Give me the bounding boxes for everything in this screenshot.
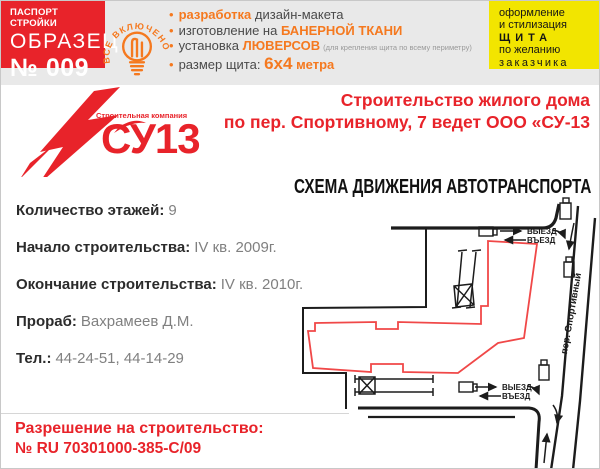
feature-item-design: •разработка дизайн-макета [169, 7, 487, 23]
street-name-label: пер. Спортивный [559, 272, 584, 355]
exit-label-bottom: ВЫЕЗД [502, 383, 532, 392]
truck-icon [560, 198, 571, 219]
enter-label-top: ВЪЕЗД [527, 236, 556, 245]
top-road [391, 204, 559, 228]
bullet-icon: • [169, 23, 174, 38]
bullet-icon: • [169, 38, 174, 53]
info-row-finish: Окончание строительства:IV кв. 2010г. [16, 274, 296, 295]
headline-line2: по пер. Спортивному, 7 ведет ООО «СУ-13 [151, 111, 590, 133]
styling-line: заказчика [499, 57, 600, 69]
exit-label-top: ВЫЕЗД [527, 227, 557, 236]
bullet-icon: • [169, 57, 174, 72]
passport-sample-label: ОБРАЗЕЦ [10, 30, 105, 54]
lightbulb-icon: ВСЕ ВКЛЮЧЕНО [99, 2, 175, 85]
construction-passport-sign: ПАСПОРТ СТРОЙКИ ОБРАЗЕЦ № 009 ВСЕ ВКЛЮЧЕ… [0, 0, 600, 469]
passport-number: № 009 [10, 54, 105, 83]
project-info-list: Количество этажей:9 Начало строительства… [16, 200, 296, 385]
info-row-floors: Количество этажей:9 [16, 200, 296, 221]
bullet-icon: • [169, 7, 174, 22]
building-permit: Разрешение на строительство: № RU 703010… [15, 419, 264, 458]
permit-number: № RU 70301000-385-С/09 [15, 439, 264, 458]
top-band: ПАСПОРТ СТРОЙКИ ОБРАЗЕЦ № 009 ВСЕ ВКЛЮЧЕ… [1, 1, 600, 85]
all-inclusive-badge: ВСЕ ВКЛЮЧЕНО [99, 2, 175, 85]
project-headline: Строительство жилого дома по пер. Спорти… [151, 89, 590, 133]
headline-line1: Строительство жилого дома [151, 89, 590, 111]
info-row-phone: Тел.:44-24-51, 44-14-29 [16, 348, 296, 369]
permit-title: Разрешение на строительство: [15, 419, 264, 439]
styling-line: по желанию [499, 44, 600, 56]
truck-icon [539, 360, 549, 380]
section-divider [1, 413, 349, 414]
info-row-start: Начало строительства:IV кв. 2009г. [16, 237, 296, 258]
enter-label-bottom: ВЪЕЗД [502, 392, 531, 401]
street-entry-curve [569, 223, 574, 249]
feature-item-eyelets: •установка ЛЮВЕРСОВ(для крепления щита п… [169, 38, 487, 56]
styling-line-shield: ЩИТА [499, 32, 600, 44]
passport-kicker: ПАСПОРТ СТРОЙКИ [10, 7, 105, 29]
tower-crane-lower [355, 375, 433, 396]
road-direction-arrow [544, 434, 547, 463]
feature-item-banner: •изготовление на БАНЕРНОЙ ТКАНИ [169, 23, 487, 39]
feature-list: •разработка дизайн-макета •изготовление … [169, 7, 487, 72]
feature-item-size: •размер щита: 6х4 метра [169, 56, 487, 73]
styling-offer-box: оформление и стилизация ЩИТА по желанию … [489, 1, 600, 69]
styling-line: и стилизация [499, 19, 600, 31]
street-line-outer [573, 218, 595, 469]
traffic-schema-map: ВЫЕЗД ВЪЕЗД ВЫЕЗД ВЪЕЗД пер. Спортивный [291, 191, 600, 469]
truck-icon [459, 382, 477, 392]
junction-curve-bottom2 [553, 405, 558, 423]
tower-crane-upper [452, 250, 481, 308]
passport-sample-box: ПАСПОРТ СТРОЙКИ ОБРАЗЕЦ № 009 [1, 1, 105, 68]
info-row-foreman: Прораб:Вахрамеев Д.М. [16, 311, 296, 332]
styling-line: оформление [499, 7, 600, 19]
